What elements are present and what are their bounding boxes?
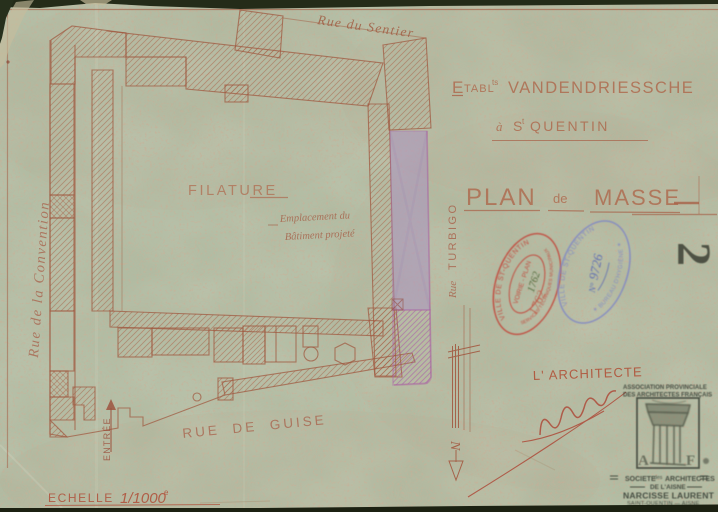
svg-text:e: e	[164, 488, 169, 497]
svg-text:S: S	[513, 118, 522, 134]
svg-text:ECHELLE: ECHELLE	[48, 491, 114, 505]
svg-text:PLAN: PLAN	[466, 184, 537, 211]
svg-text:ts: ts	[492, 78, 498, 87]
svg-text:à: à	[496, 119, 503, 134]
svg-text:TABL: TABL	[464, 83, 495, 95]
svg-text:des: des	[654, 475, 663, 481]
svg-text:Rue: Rue	[447, 281, 459, 299]
svg-text:de: de	[553, 191, 567, 206]
svg-text:QUENTIN: QUENTIN	[530, 118, 610, 134]
svg-text:F: F	[686, 453, 695, 469]
svg-text:A: A	[638, 453, 649, 469]
svg-text:2: 2	[667, 242, 718, 266]
svg-text:ASSOCIATION PROVINCIALE: ASSOCIATION PROVINCIALE	[623, 385, 707, 391]
svg-text:SOCIETE: SOCIETE	[625, 476, 656, 483]
svg-text:FILATURE: FILATURE	[188, 183, 278, 199]
svg-text:ENTRÉE: ENTRÉE	[102, 417, 112, 461]
svg-text:E: E	[452, 78, 463, 97]
svg-text:MASSE: MASSE	[594, 185, 681, 210]
svg-text:NARCISSE LAURENT: NARCISSE LAURENT	[623, 491, 715, 501]
svg-text:VANDENDRIESSCHE: VANDENDRIESSCHE	[508, 79, 694, 97]
svg-text:TURBIGO: TURBIGO	[447, 202, 459, 270]
svg-text:N: N	[447, 440, 462, 451]
